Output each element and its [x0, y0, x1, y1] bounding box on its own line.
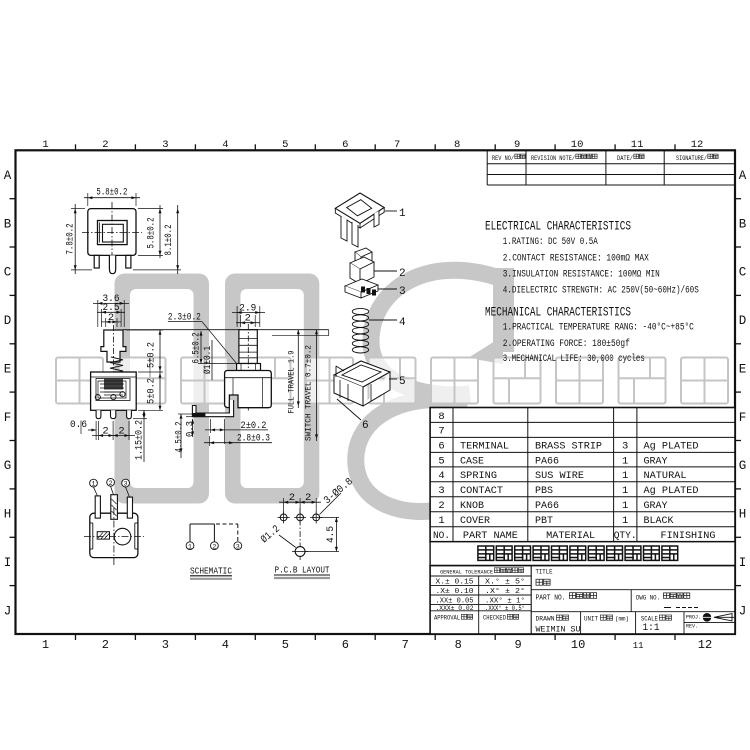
svg-text:QTY.: QTY.	[614, 531, 637, 542]
svg-text:X.± 0.15: X.± 0.15	[436, 579, 474, 587]
svg-text:1: 1	[399, 208, 406, 220]
svg-text:4: 4	[438, 470, 444, 482]
svg-text:2: 2	[118, 426, 124, 438]
svg-text:7: 7	[438, 426, 444, 438]
svg-text:A: A	[4, 169, 12, 183]
svg-text:4: 4	[222, 139, 228, 151]
svg-text:2: 2	[102, 426, 108, 438]
svg-text:9: 9	[514, 638, 521, 652]
svg-text:.X± 0.10: .X± 0.10	[436, 588, 474, 596]
svg-text:6: 6	[342, 139, 348, 151]
svg-text:SPRING: SPRING	[460, 471, 497, 482]
svg-text:C: C	[739, 266, 747, 280]
svg-text:8.1±0.2: 8.1±0.2	[163, 225, 175, 256]
svg-text:3.MECHANICAL LIFE: 30,000 cycl: 3.MECHANICAL LIFE: 30,000 cycles	[503, 353, 645, 365]
svg-text:A: A	[739, 169, 747, 183]
svg-text:H: H	[4, 508, 12, 522]
svg-text:D: D	[4, 314, 12, 328]
svg-text:7.8±0.2: 7.8±0.2	[65, 224, 77, 255]
svg-text:X.° ± 5°: X.° ± 5°	[485, 578, 525, 587]
svg-text:1.PRACTICAL TEMPERATURE RANG:: 1.PRACTICAL TEMPERATURE RANG: -40°C~+85°…	[503, 322, 694, 334]
svg-text:3: 3	[438, 485, 444, 497]
svg-text:1: 1	[622, 470, 628, 482]
svg-text:7: 7	[402, 638, 409, 652]
svg-text:PART NO.: PART NO.	[536, 594, 566, 602]
svg-text:DWG NO.: DWG NO.	[636, 594, 660, 601]
svg-text:Ag PLATED: Ag PLATED	[644, 442, 699, 453]
svg-text:C: C	[4, 266, 12, 280]
svg-text:5±0.2: 5±0.2	[145, 378, 157, 404]
svg-text:3: 3	[124, 481, 128, 488]
svg-text:PA66: PA66	[535, 501, 559, 512]
svg-text:0.3: 0.3	[184, 421, 196, 437]
svg-text:BLACK: BLACK	[644, 516, 674, 527]
svg-text:CASE: CASE	[460, 457, 484, 468]
svg-text:4.DIELECTRIC STRENGTH: AC 250V: 4.DIELECTRIC STRENGTH: AC 250V(50~60Hz)/…	[503, 284, 699, 296]
svg-text:E: E	[739, 363, 747, 377]
svg-text:SCALE: SCALE	[641, 616, 658, 623]
svg-text:6: 6	[438, 441, 444, 453]
svg-text:TITLE: TITLE	[536, 569, 553, 576]
svg-text:2: 2	[102, 638, 109, 652]
svg-text:4.5: 4.5	[325, 526, 337, 543]
svg-text:3: 3	[622, 441, 628, 453]
svg-text:1: 1	[42, 638, 49, 652]
svg-text:5: 5	[399, 376, 406, 388]
svg-text:DRAWN: DRAWN	[536, 616, 555, 623]
svg-text:2: 2	[289, 492, 295, 504]
svg-text:J: J	[4, 604, 12, 618]
svg-text:2.CONTACT RESISTANCE: 100mΩ MA: 2.CONTACT RESISTANCE: 100mΩ MAX	[503, 253, 649, 264]
svg-text:NO.: NO.	[433, 531, 450, 542]
svg-text:2: 2	[245, 313, 251, 325]
svg-text:5: 5	[438, 456, 444, 468]
svg-text:3: 3	[399, 286, 406, 298]
svg-text:5.8±0.2: 5.8±0.2	[146, 218, 158, 249]
svg-text:3: 3	[162, 139, 168, 151]
svg-text:FULL TRAVEL 1.9: FULL TRAVEL 1.9	[287, 351, 297, 414]
svg-text:Ø1±0.1: Ø1±0.1	[202, 346, 214, 374]
svg-text:1: 1	[622, 485, 628, 497]
svg-text:11: 11	[631, 139, 644, 151]
svg-text:2: 2	[438, 500, 444, 512]
svg-text:GRAY: GRAY	[644, 457, 668, 468]
svg-text:ELECTRICAL CHARACTERISTICS: ELECTRICAL CHARACTERISTICS	[485, 220, 631, 234]
svg-text:TERMINAL: TERMINAL	[460, 442, 509, 453]
svg-text:I: I	[4, 556, 12, 570]
svg-text:PROJ.: PROJ.	[686, 613, 701, 620]
svg-text:CONTACT: CONTACT	[460, 486, 503, 497]
svg-text:GENERAL TOLERANCE: GENERAL TOLERANCE	[440, 569, 493, 576]
svg-text:H: H	[739, 508, 747, 522]
svg-text:2: 2	[305, 492, 311, 504]
svg-text:PBS: PBS	[535, 486, 553, 497]
svg-text:1.15±0.2: 1.15±0.2	[134, 420, 146, 460]
svg-text:5.8±0.2: 5.8±0.2	[96, 187, 127, 199]
svg-text:COVER: COVER	[460, 516, 490, 527]
svg-text:2: 2	[109, 480, 113, 487]
svg-text:REVISION NOTE/: REVISION NOTE/	[531, 155, 575, 162]
svg-text:3: 3	[162, 638, 169, 652]
svg-text:1: 1	[438, 515, 444, 527]
svg-text:G: G	[4, 459, 12, 473]
svg-text:.XXX° ± 0.5°: .XXX° ± 0.5°	[485, 604, 525, 612]
svg-text:REV.: REV.	[686, 622, 698, 629]
svg-text:(mm): (mm)	[615, 616, 629, 623]
svg-text:PART NAME: PART NAME	[463, 531, 518, 542]
svg-text:2: 2	[102, 139, 108, 151]
svg-text:KNOB: KNOB	[460, 501, 484, 512]
svg-text:8: 8	[455, 638, 462, 652]
svg-text:SUS WIRE: SUS WIRE	[535, 471, 584, 482]
svg-text:4: 4	[399, 317, 406, 329]
svg-text:REV NO/: REV NO/	[492, 155, 514, 162]
svg-text:I: I	[739, 556, 747, 570]
svg-text:12: 12	[691, 139, 704, 151]
svg-text:6: 6	[342, 638, 349, 652]
svg-text:UNIT: UNIT	[584, 616, 598, 623]
svg-text:1.RATING: DC 50V 0.5A: 1.RATING: DC 50V 0.5A	[503, 237, 598, 248]
svg-text:8: 8	[438, 411, 444, 423]
svg-text:1:1: 1:1	[643, 623, 660, 634]
svg-text:5: 5	[282, 139, 288, 151]
svg-text:5±0.2: 5±0.2	[145, 342, 157, 368]
svg-text:2.8±0.3: 2.8±0.3	[237, 433, 270, 445]
svg-text:6.5±0.2: 6.5±0.2	[191, 333, 203, 364]
svg-text:11: 11	[633, 641, 644, 651]
svg-text:WEIMIN SU: WEIMIN SU	[536, 624, 581, 634]
svg-text:.XXX± 0.02: .XXX± 0.02	[436, 605, 474, 612]
svg-text:12: 12	[698, 638, 712, 652]
svg-text:P.C.B LAYOUT: P.C.B LAYOUT	[275, 564, 330, 575]
svg-text:F: F	[739, 411, 747, 425]
svg-text:NATURAL: NATURAL	[644, 471, 687, 482]
svg-text:4: 4	[222, 638, 229, 652]
svg-text:8: 8	[454, 139, 460, 151]
svg-text:GRAY: GRAY	[644, 501, 668, 512]
svg-text:9: 9	[514, 139, 520, 151]
svg-text:BRASS STRIP: BRASS STRIP	[535, 442, 602, 453]
svg-text:5: 5	[282, 638, 289, 652]
svg-text:1: 1	[622, 456, 628, 468]
svg-text:D: D	[739, 314, 747, 328]
svg-text:1: 1	[622, 515, 628, 527]
svg-text:3: 3	[236, 543, 240, 550]
svg-text:1: 1	[92, 481, 96, 488]
svg-text:.X° ± 2°: .X° ± 2°	[485, 587, 525, 596]
svg-text:B: B	[4, 217, 12, 231]
svg-text:PA66: PA66	[535, 457, 559, 468]
svg-text:FINISHING: FINISHING	[661, 531, 716, 542]
svg-text:2: 2	[399, 268, 406, 280]
svg-text:2.OPERATING FORCE: 180±50gf: 2.OPERATING FORCE: 180±50gf	[503, 338, 630, 350]
svg-text:F: F	[4, 411, 12, 425]
svg-text:Ag PLATED: Ag PLATED	[644, 486, 699, 497]
svg-text:CHECKED: CHECKED	[483, 615, 506, 622]
svg-text:DATE/: DATE/	[617, 155, 633, 162]
svg-text:J: J	[739, 604, 747, 618]
svg-text:7: 7	[394, 139, 400, 151]
svg-text:MATERIAL: MATERIAL	[546, 531, 595, 542]
svg-text:10: 10	[571, 139, 584, 151]
svg-text:1: 1	[188, 543, 192, 550]
svg-text:MECHANICAL CHARACTERISTICS: MECHANICAL CHARACTERISTICS	[485, 306, 631, 320]
svg-text:1: 1	[622, 500, 628, 512]
svg-text:APPROVAL: APPROVAL	[434, 615, 460, 622]
svg-text:2±0.2: 2±0.2	[241, 420, 267, 432]
svg-text:SCHEMATIC: SCHEMATIC	[190, 566, 232, 577]
svg-text:6: 6	[362, 420, 369, 432]
svg-text:1: 1	[42, 139, 48, 151]
svg-text:3.INSULATION RESISTANCE: 100MΩ: 3.INSULATION RESISTANCE: 100MΩ MIN	[503, 269, 660, 280]
svg-text:10: 10	[571, 638, 585, 652]
svg-text:0.6: 0.6	[70, 419, 87, 431]
svg-text:SWITCH TRAVEL 0.7±0.2: SWITCH TRAVEL 0.7±0.2	[304, 345, 314, 441]
svg-text:B: B	[739, 217, 747, 231]
svg-text:2: 2	[212, 543, 216, 550]
svg-text:G: G	[739, 459, 747, 473]
svg-text:PBT: PBT	[535, 516, 553, 527]
svg-text:SIGNATURE/: SIGNATURE/	[676, 155, 707, 162]
svg-text:E: E	[4, 363, 12, 377]
